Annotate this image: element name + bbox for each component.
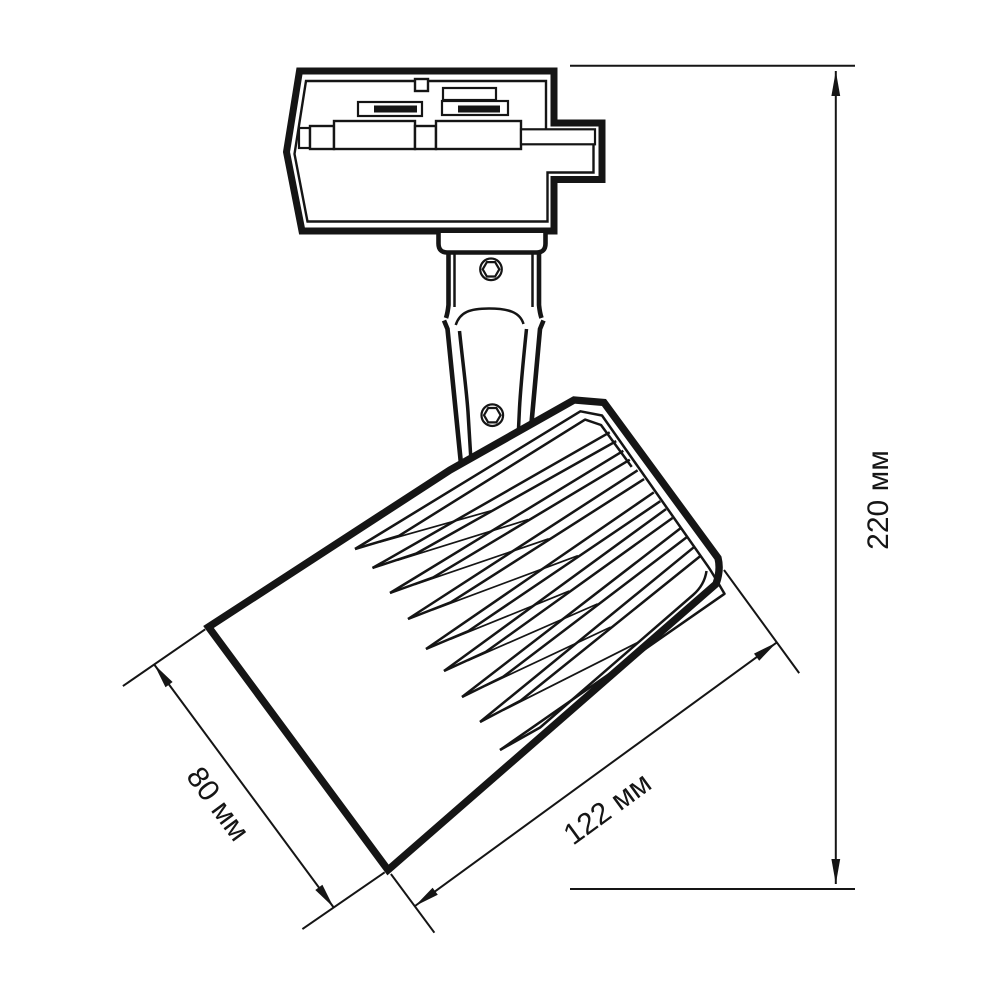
svg-text:220 мм: 220 мм — [862, 450, 895, 550]
svg-text:80 мм: 80 мм — [180, 761, 256, 847]
svg-text:122 мм: 122 мм — [558, 766, 658, 851]
